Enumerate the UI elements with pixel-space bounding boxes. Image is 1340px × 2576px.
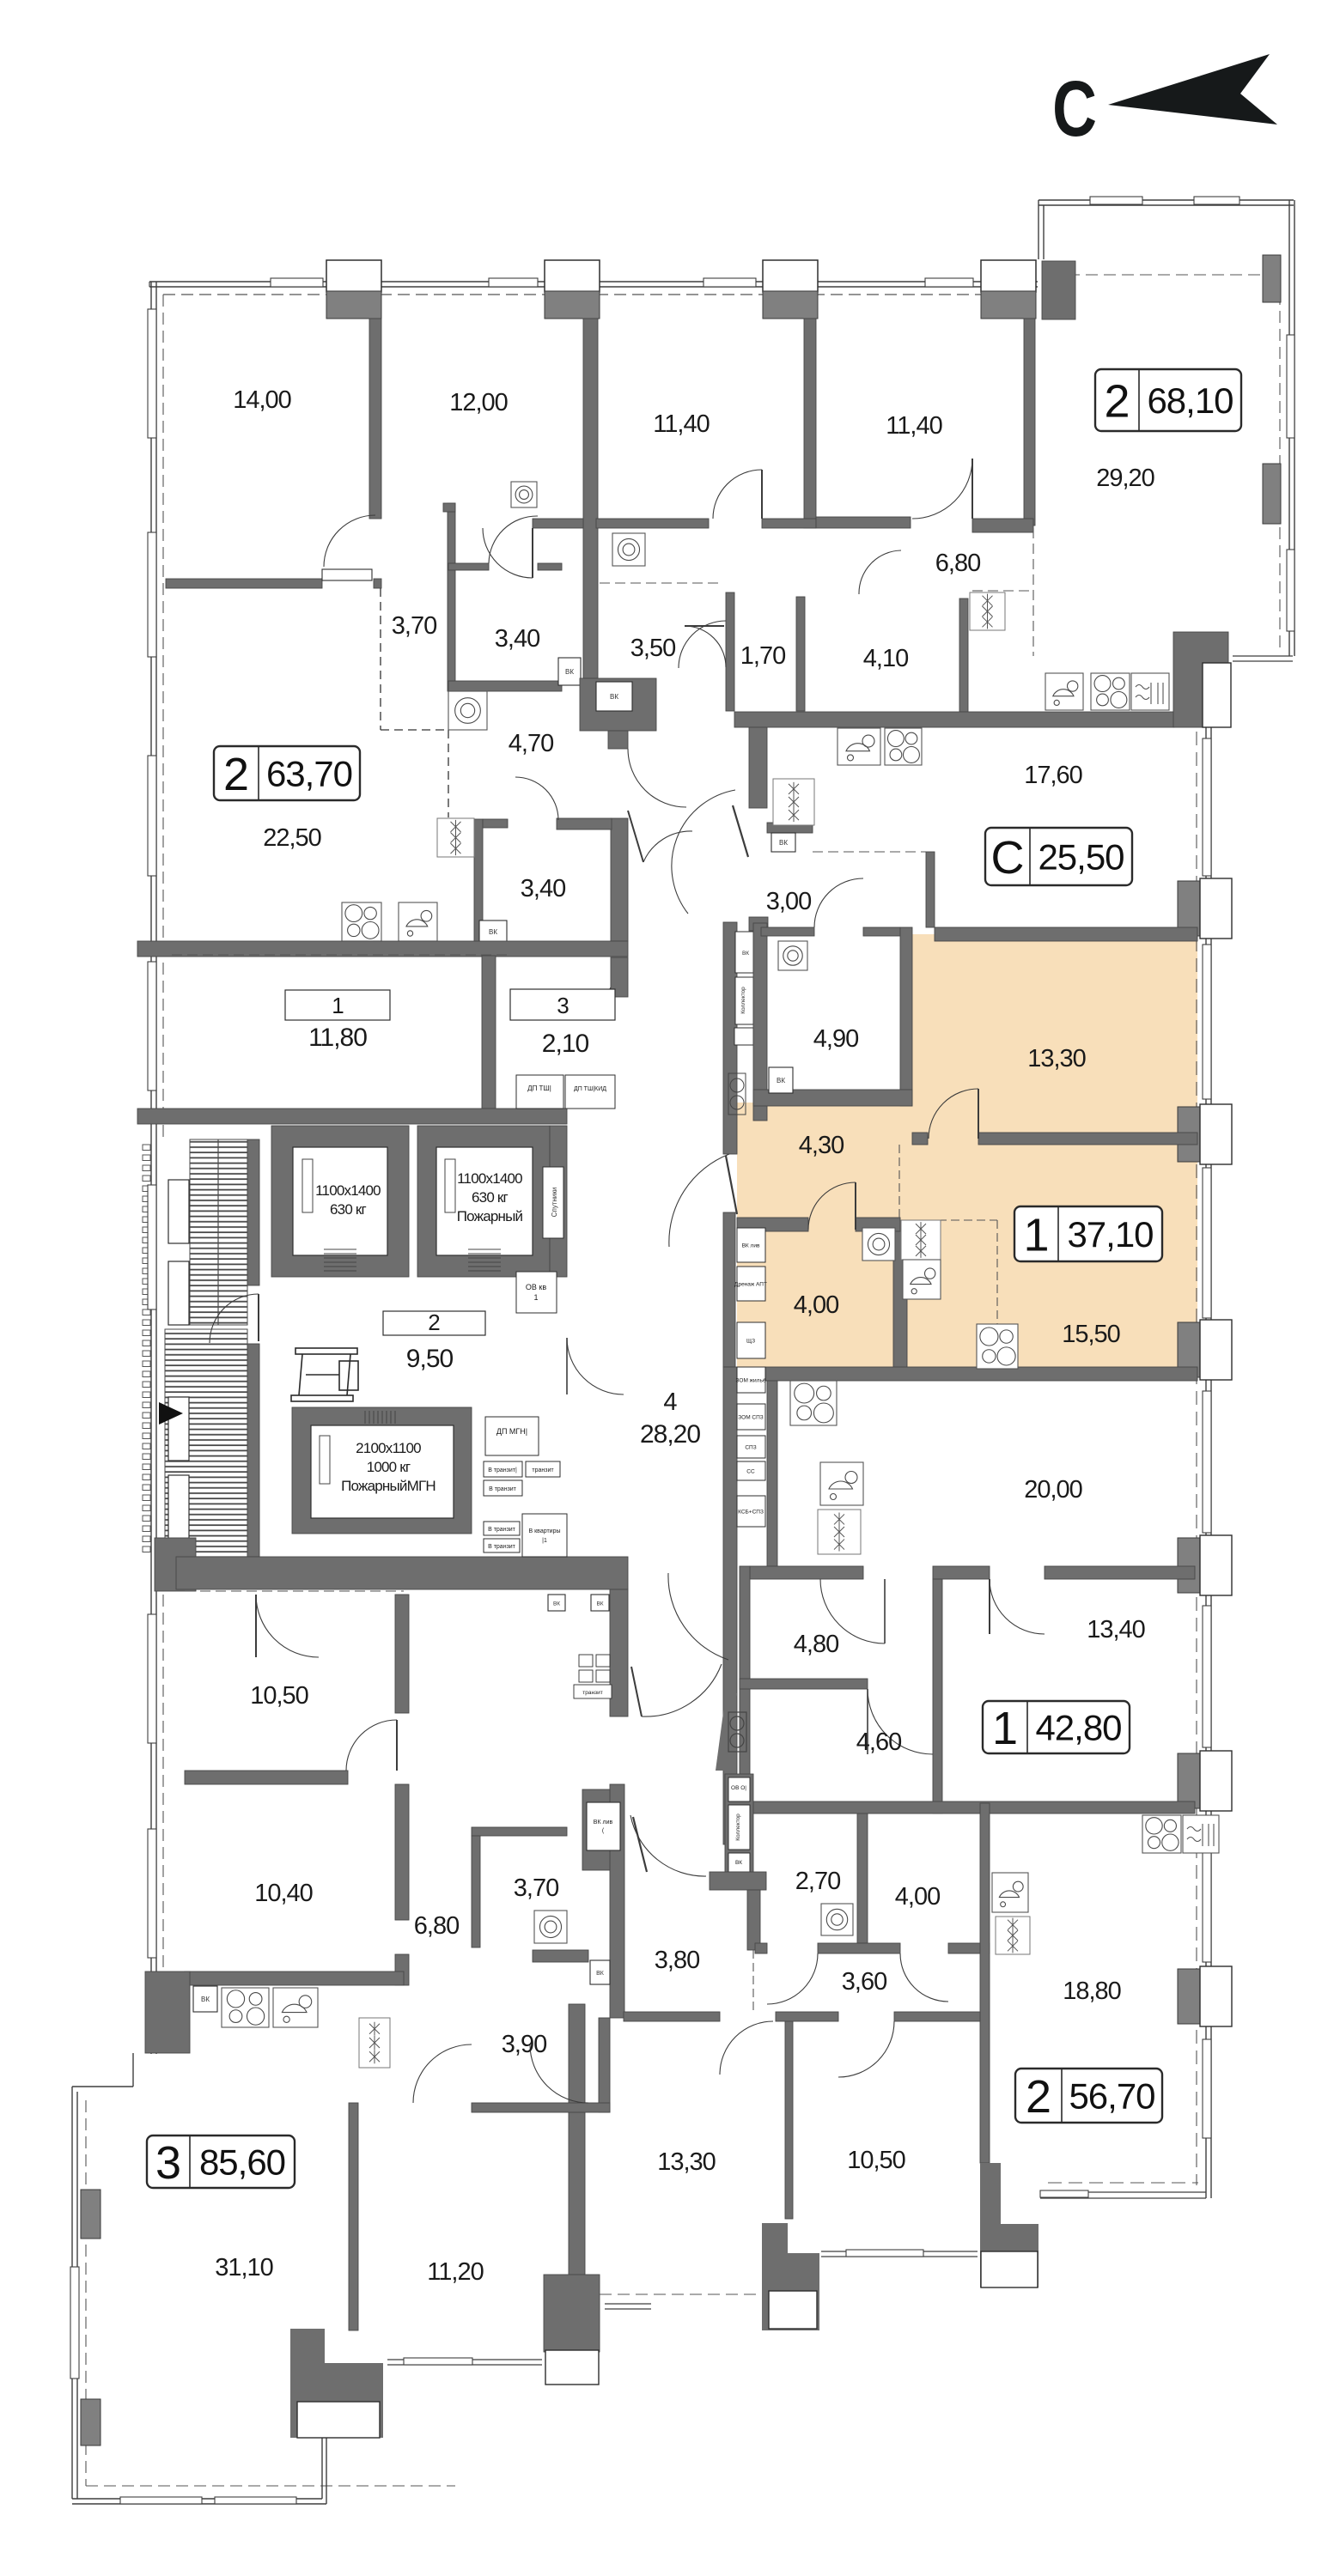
svg-text:С: С [991,832,1025,884]
svg-text:3,70: 3,70 [514,1874,558,1902]
svg-text:В транзит|: В транзит| [488,1467,517,1473]
svg-text:Спутники: Спутники [551,1188,558,1218]
svg-text:1: 1 [992,1703,1018,1754]
svg-text:ВК: ВК [779,839,788,847]
svg-text:31,10: 31,10 [215,2254,273,2281]
svg-text:ВК: ВК [596,1971,605,1977]
svg-text:2: 2 [428,1309,440,1335]
svg-text:3,90: 3,90 [502,2031,546,2058]
svg-text:2: 2 [1026,2071,1051,2123]
svg-text:4,90: 4,90 [813,1025,858,1053]
svg-text:11,40: 11,40 [886,412,941,440]
svg-text:4,30: 4,30 [799,1132,844,1159]
svg-text:42,80: 42,80 [1035,1708,1121,1748]
svg-text:18,80: 18,80 [1063,1978,1121,2005]
svg-text:1100x1400: 1100x1400 [457,1170,522,1187]
svg-text:СС: СС [746,1469,755,1475]
svg-text:68,10: 68,10 [1147,380,1233,421]
svg-text:3,40: 3,40 [521,875,565,902]
svg-text:ОВ кв: ОВ кв [526,1283,546,1291]
svg-text:10,40: 10,40 [254,1880,313,1907]
svg-text:ВК: ВК [489,928,497,936]
svg-text:ДП ТШ|: ДП ТШ| [527,1084,551,1092]
svg-text:ВК: ВК [610,693,618,701]
svg-text:2,70: 2,70 [795,1868,840,1895]
svg-text:6,80: 6,80 [414,1912,459,1940]
svg-text:1: 1 [533,1293,538,1302]
svg-text:С: С [1052,64,1097,153]
svg-text:4,00: 4,00 [895,1883,940,1911]
svg-text:630 кг: 630 кг [472,1189,509,1206]
svg-text:22,50: 22,50 [263,824,321,852]
svg-text:11,40: 11,40 [653,410,709,438]
svg-text:4,00: 4,00 [794,1291,838,1319]
svg-text:1100x1400: 1100x1400 [315,1182,381,1199]
svg-text:ВК: ВК [777,1077,785,1084]
svg-text:13,30: 13,30 [1027,1045,1086,1072]
svg-text:ВК: ВК [565,668,574,676]
svg-text:6,80: 6,80 [935,550,980,577]
svg-text:11,80: 11,80 [308,1024,367,1052]
svg-text:56,70: 56,70 [1069,2076,1154,2117]
svg-text:63,70: 63,70 [266,754,352,794]
svg-text:В транзит: В транзит [488,1544,516,1550]
svg-text:ЩЗ: ЩЗ [746,1339,755,1345]
svg-text:ПожарныйМГН: ПожарныйМГН [341,1478,435,1494]
svg-text:15,50: 15,50 [1062,1321,1120,1348]
svg-text:10,50: 10,50 [250,1682,308,1710]
svg-text:11,20: 11,20 [427,2258,483,2286]
svg-text:3,40: 3,40 [495,625,539,653]
svg-text:КСБ+СПЗ: КСБ+СПЗ [738,1510,764,1516]
svg-text:37,10: 37,10 [1067,1214,1153,1255]
svg-text:4,10: 4,10 [863,645,908,672]
svg-text:4,70: 4,70 [509,730,553,757]
svg-text:4,80: 4,80 [794,1631,838,1658]
svg-text:В транзит: В транзит [488,1527,516,1533]
svg-text:12,00: 12,00 [449,389,508,416]
svg-text:1: 1 [332,993,344,1018]
svg-text:ДП ТШ|КИД: ДП ТШ|КИД [574,1086,606,1092]
svg-text:3,80: 3,80 [655,1947,699,1974]
svg-text:Коллектор: Коллектор [740,987,746,1014]
svg-text:ЗОМ жильё: ЗОМ жильё [736,1378,766,1384]
svg-text:13,30: 13,30 [657,2148,716,2176]
svg-text:ВК: ВК [742,951,749,957]
svg-text:ОВ О|: ОВ О| [731,1785,746,1791]
svg-text:Пожарный: Пожарный [457,1208,523,1224]
svg-text:СПЗ: СПЗ [745,1445,756,1451]
svg-text:В транзит: В транзит [489,1486,517,1492]
svg-text:29,20: 29,20 [1096,465,1154,492]
svg-text:ВК: ВК [596,1601,603,1607]
svg-text:ДП МГН|: ДП МГН| [496,1427,527,1436]
svg-text:В квартиры: В квартиры [529,1528,561,1534]
svg-text:3: 3 [557,993,569,1018]
svg-text:630 кг: 630 кг [330,1201,367,1218]
svg-text:ВК лив: ВК лив [742,1243,760,1249]
svg-text:2: 2 [223,749,249,800]
svg-text:1: 1 [1023,1209,1049,1261]
svg-text:10,50: 10,50 [847,2147,905,2174]
svg-text:3,00: 3,00 [766,888,811,915]
svg-text:Коллектор: Коллектор [735,1814,741,1841]
svg-text:17,60: 17,60 [1024,762,1082,789]
svg-text:13,40: 13,40 [1087,1616,1145,1643]
svg-text:Дренаж АПТ: Дренаж АПТ [734,1282,767,1288]
svg-text:85,60: 85,60 [199,2142,285,2183]
svg-text:1000 кг: 1000 кг [367,1459,411,1475]
svg-text:25,50: 25,50 [1038,837,1124,878]
svg-text:3,60: 3,60 [842,1968,886,1996]
svg-text:3,50: 3,50 [630,635,675,662]
svg-text:транзит: транзит [582,1690,602,1696]
svg-text:4: 4 [663,1388,677,1416]
svg-text:3: 3 [155,2137,181,2189]
svg-text:20,00: 20,00 [1024,1476,1082,1504]
svg-text:1,70: 1,70 [740,642,785,670]
svg-text:|1: |1 [542,1538,547,1544]
svg-text:4,60: 4,60 [856,1728,901,1756]
svg-text:2,10: 2,10 [542,1030,589,1058]
svg-text:9,50: 9,50 [406,1345,454,1373]
svg-text:3,70: 3,70 [392,612,436,640]
svg-text:2100x1100: 2100x1100 [356,1440,421,1456]
svg-text:ВК: ВК [553,1601,560,1607]
svg-text:14,00: 14,00 [233,386,291,414]
svg-text:ЗОМ СПЗ: ЗОМ СПЗ [738,1415,763,1421]
svg-text:28,20: 28,20 [640,1420,700,1449]
svg-text:транзит: транзит [532,1467,554,1473]
svg-text:ВК: ВК [201,1996,210,2003]
svg-text:2: 2 [1104,375,1130,427]
svg-text:ВК лив: ВК лив [594,1820,613,1826]
svg-text:ВК: ВК [735,1860,742,1866]
